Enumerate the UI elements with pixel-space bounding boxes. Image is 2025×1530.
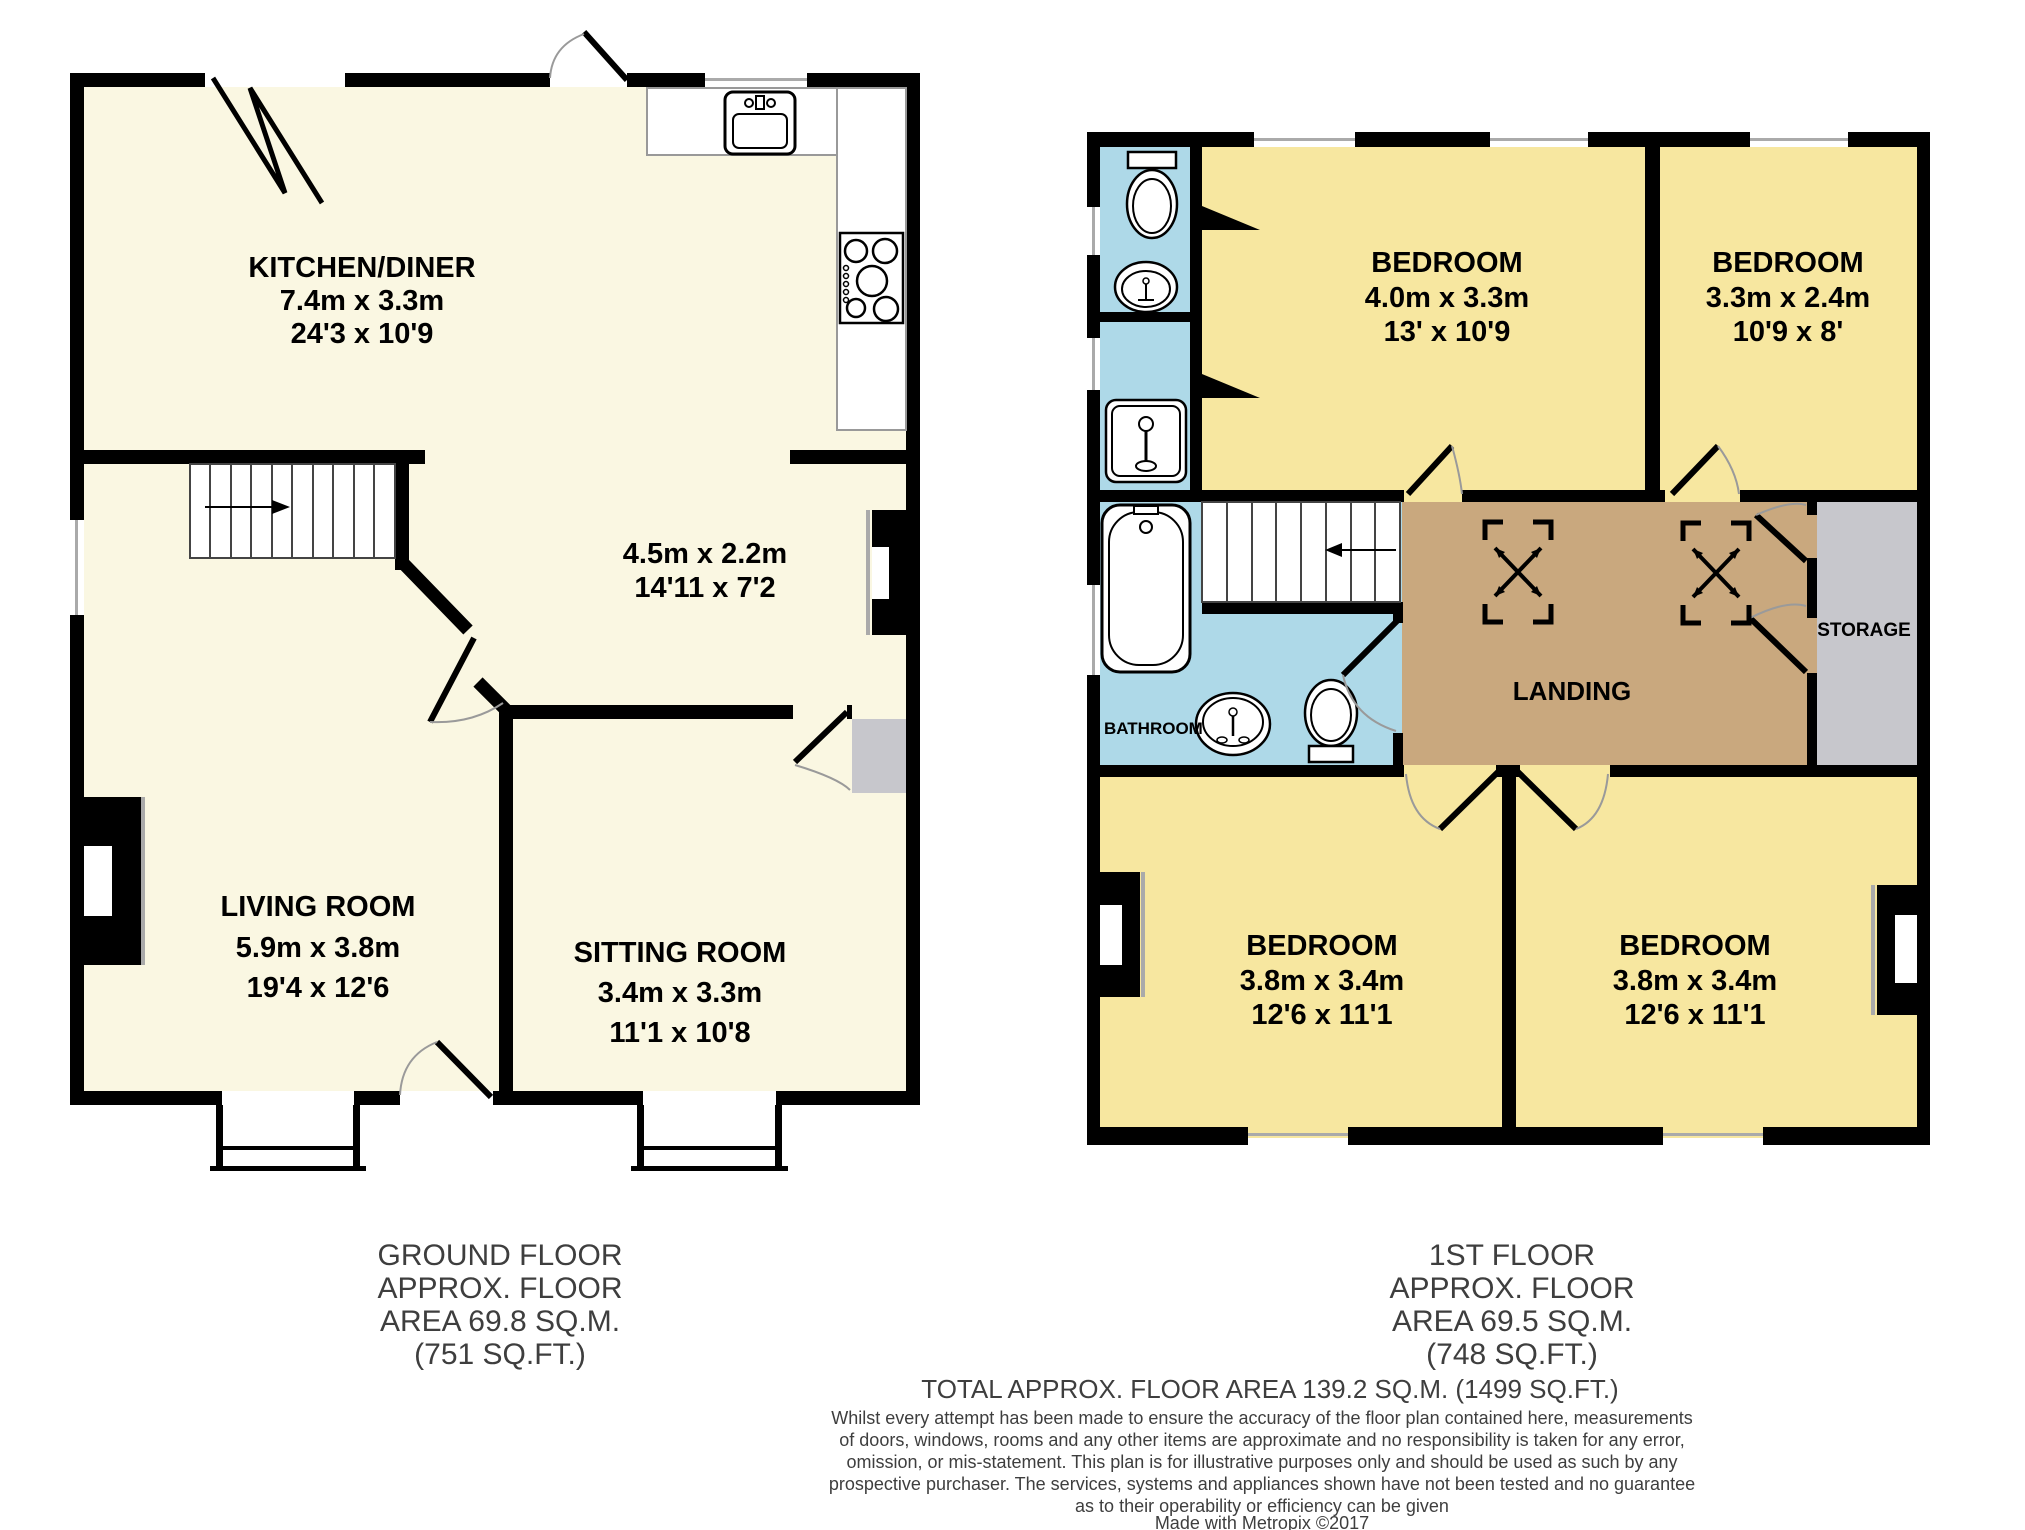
wall — [1588, 132, 1750, 147]
kitchen-diner-label: KITCHEN/DINER — [248, 252, 475, 284]
kitchen-entry-door — [550, 32, 627, 80]
wall — [493, 1091, 643, 1105]
storage-label: STORAGE — [1817, 620, 1911, 641]
wall — [1355, 132, 1490, 147]
footer: GROUND FLOOR APPROX. FLOOR AREA 69.8 SQ.… — [377, 1239, 1695, 1530]
window-sash — [1092, 585, 1095, 675]
wall — [807, 73, 920, 87]
wc-toilet — [1127, 152, 1177, 238]
living-room-metric: 5.9m x 3.8m — [236, 932, 400, 964]
kitchen-bottom-wall — [84, 450, 425, 464]
sitting-room-top-wall — [847, 705, 852, 719]
bathroom-door-stub — [1393, 733, 1403, 765]
sitting-room-imperial: 11'1 x 10'8 — [609, 1017, 750, 1049]
wc-divider-wall — [1100, 312, 1190, 322]
stairs-bottom-wall — [1202, 602, 1400, 614]
ground-floor-footer-line: GROUND FLOOR — [377, 1239, 622, 1272]
staircase-ground — [190, 464, 395, 558]
wall — [70, 73, 84, 520]
bedroom-back-left-label: BEDROOM — [1246, 930, 1397, 962]
hall-window-recess — [866, 510, 906, 635]
wall — [345, 73, 550, 87]
door-arc — [550, 34, 584, 78]
bathroom-label: BATHROOM — [1104, 719, 1203, 738]
under-bedrooms-wall — [1462, 490, 1665, 502]
kitchen-diner-imperial: 24'3 x 10'9 — [291, 318, 434, 350]
wall — [1087, 675, 1100, 1145]
sitting-room-alcove — [852, 719, 906, 793]
bay-window-sitting — [631, 1105, 788, 1171]
total-area-line: TOTAL APPROX. FLOOR AREA 139.2 SQ.M. (14… — [921, 1374, 1618, 1404]
sitting-room-metric: 3.4m x 3.3m — [598, 977, 762, 1009]
stair-side-wall — [395, 450, 409, 570]
disclaimer-line: Whilst every attempt has been made to en… — [831, 1408, 1692, 1428]
bedroom-front-large-metric: 4.0m x 3.3m — [1365, 282, 1529, 314]
wc-basin — [1115, 262, 1177, 312]
bedroom-front-small-imperial: 10'9 x 8' — [1733, 316, 1844, 348]
room-divider-wall — [499, 719, 513, 1091]
wall — [70, 1091, 222, 1105]
first-floor-footer-line: 1ST FLOOR — [1429, 1239, 1595, 1272]
wall — [906, 73, 920, 1105]
sitting-room-label: SITTING ROOM — [574, 937, 787, 969]
kitchen-bottom-wall — [790, 450, 906, 464]
first-floor-footer-line: AREA 69.5 SQ.M. — [1392, 1305, 1632, 1338]
window-sash — [75, 520, 78, 615]
window-sash — [1092, 338, 1095, 390]
ground-floor-footer-line: AREA 69.8 SQ.M. — [380, 1305, 620, 1338]
under-bedrooms-wall — [1100, 490, 1404, 502]
shower-basin — [1106, 400, 1186, 482]
bedroom-back-right-imperial: 12'6 x 11'1 — [1624, 999, 1765, 1031]
door-leaf — [584, 32, 627, 80]
bathroom-basin — [1196, 693, 1270, 755]
wall — [1348, 1127, 1663, 1145]
living-room-chimney-breast — [84, 797, 145, 965]
credit-line: Made with Metropix ©2017 — [1155, 1513, 1369, 1530]
disclaimer-line: of doors, windows, rooms and any other i… — [839, 1430, 1684, 1450]
hallway-metric: 4.5m x 2.2m — [623, 538, 787, 570]
window-sash — [1490, 138, 1588, 141]
window-sash — [1750, 138, 1848, 141]
window-sash — [1092, 207, 1095, 255]
back-bedrooms-divider — [1502, 765, 1516, 1127]
wall — [1087, 390, 1100, 585]
landing-bottom-wall — [1100, 765, 1404, 777]
bedroom-front-small-label: BEDROOM — [1712, 247, 1863, 279]
storage-wall-stub — [1807, 502, 1817, 515]
wall — [70, 73, 205, 87]
wall — [354, 1091, 400, 1105]
bedroom-front-small-metric: 3.3m x 2.4m — [1706, 282, 1870, 314]
ground-floor-plan: KITCHEN/DINER 7.4m x 3.3m 24'3 x 10'9 4.… — [70, 32, 920, 1171]
wall — [1917, 132, 1930, 1145]
landing-floor — [1402, 502, 1817, 765]
bedroom-front-large-imperial: 13' x 10'9 — [1384, 316, 1511, 348]
wall — [627, 73, 705, 87]
first-floor-footer-line: APPROX. FLOOR — [1389, 1272, 1634, 1305]
floorplan-canvas: KITCHEN/DINER 7.4m x 3.3m 24'3 x 10'9 4.… — [0, 0, 2025, 1530]
wall — [1087, 132, 1254, 147]
bedroom-back-left-imperial: 12'6 x 11'1 — [1251, 999, 1392, 1031]
bedroom-back-right-metric: 3.8m x 3.4m — [1613, 965, 1777, 997]
window-sash — [1254, 138, 1355, 141]
blue-rooms-right-wall — [1190, 147, 1202, 502]
living-room-label: LIVING ROOM — [221, 891, 416, 923]
wall — [1087, 255, 1100, 338]
stove-hob — [840, 233, 903, 323]
window-sash — [705, 78, 807, 81]
floorplan-page: KITCHEN/DINER 7.4m x 3.3m 24'3 x 10'9 4.… — [0, 0, 2025, 1530]
landing-bottom-wall — [1610, 765, 1930, 777]
living-room-imperial: 19'4 x 12'6 — [247, 972, 390, 1004]
window-sash — [1663, 1133, 1763, 1136]
bedroom-divider-wall — [1645, 147, 1660, 490]
first-floor-footer-line: (748 SQ.FT.) — [1426, 1338, 1598, 1371]
kitchen-diner-metric: 7.4m x 3.3m — [280, 285, 444, 317]
bathtub — [1102, 505, 1190, 672]
sitting-room-top-wall — [499, 705, 793, 719]
staircase-first — [1202, 502, 1400, 602]
kitchen-sink — [725, 92, 795, 154]
wall — [1763, 1127, 1930, 1145]
wall — [1087, 132, 1100, 207]
bedroom-back-left-metric: 3.8m x 3.4m — [1240, 965, 1404, 997]
bedroom-front-large-label: BEDROOM — [1371, 247, 1522, 279]
bedroom-back-left-chimney-breast — [1100, 872, 1145, 997]
wall — [70, 615, 84, 1105]
disclaimer-line: omission, or mis-statement. This plan is… — [846, 1452, 1677, 1472]
bedroom-back-right-chimney-breast — [1871, 885, 1917, 1015]
wall — [776, 1091, 920, 1105]
landing-label: LANDING — [1513, 676, 1631, 706]
bay-window-living — [210, 1105, 366, 1171]
ground-floor-footer-line: (751 SQ.FT.) — [414, 1338, 586, 1371]
under-bedrooms-wall — [1740, 490, 1930, 502]
disclaimer-line: prospective purchaser. The services, sys… — [829, 1474, 1695, 1494]
storage-wall-stub — [1807, 558, 1817, 618]
ground-floor-footer-line: APPROX. FLOOR — [377, 1272, 622, 1305]
bedroom-back-right-label: BEDROOM — [1619, 930, 1770, 962]
first-floor-plan: BEDROOM 4.0m x 3.3m 13' x 10'9 BEDROOM 3… — [1087, 132, 1930, 1145]
window-sash — [1248, 1133, 1348, 1136]
storage-wall-stub — [1807, 673, 1817, 765]
hallway-imperial: 14'11 x 7'2 — [634, 572, 775, 604]
wall — [1087, 1127, 1248, 1145]
